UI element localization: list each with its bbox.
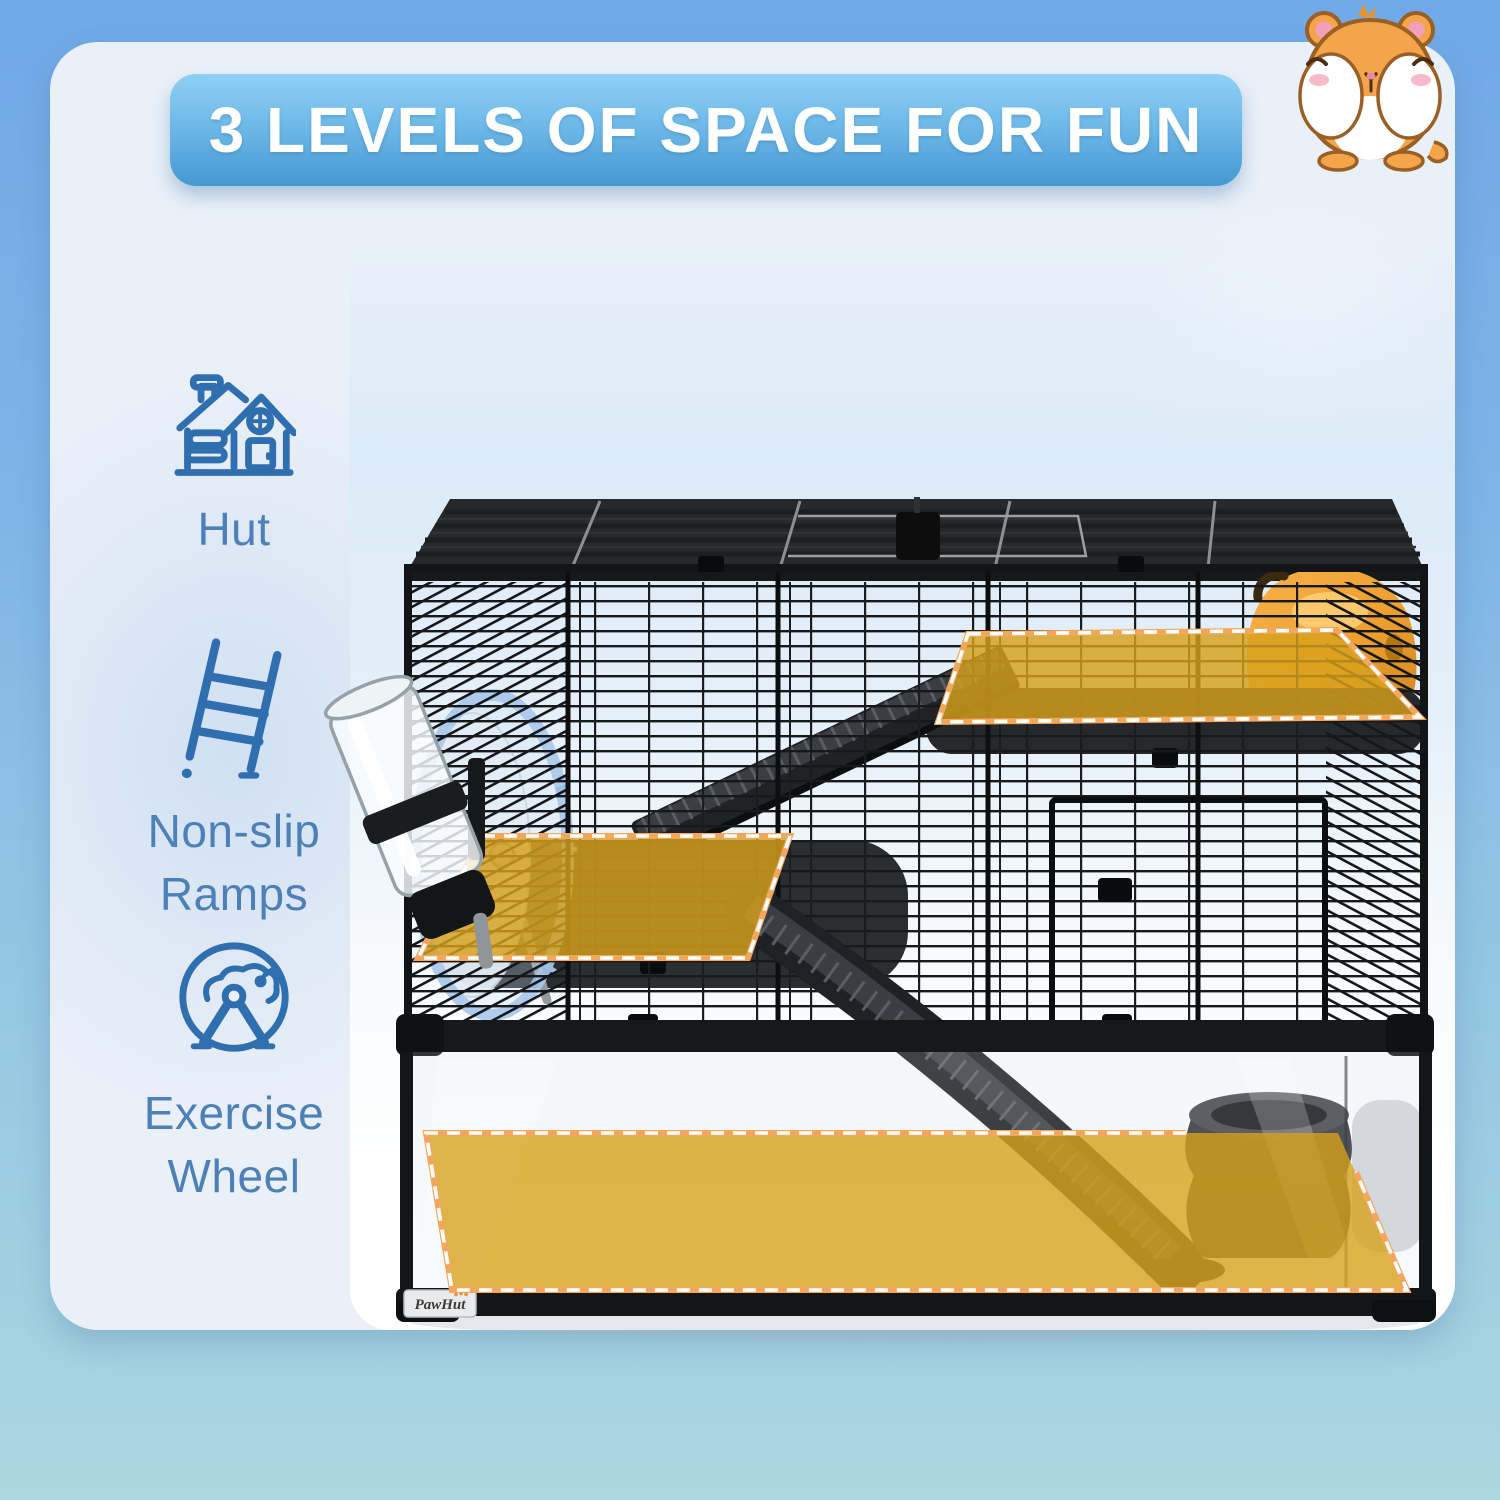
feature-wheel: Exercise Wheel bbox=[88, 938, 380, 1209]
feature-label: Exercise Wheel bbox=[88, 1082, 380, 1209]
title-banner: 3 LEVELS OF SPACE FOR FUN bbox=[170, 74, 1242, 186]
hut-icon bbox=[172, 372, 296, 482]
product-infographic: 3 LEVELS OF SPACE FOR FUN bbox=[0, 0, 1500, 1500]
feature-label: Non-slip Ramps bbox=[88, 800, 380, 927]
feature-label: Hut bbox=[197, 498, 270, 561]
feature-ramps: Non-slip Ramps bbox=[88, 634, 380, 927]
hamster-illustration bbox=[1278, 0, 1464, 176]
level-1-floor-highlight bbox=[426, 1133, 1407, 1290]
banner-title: 3 LEVELS OF SPACE FOR FUN bbox=[209, 93, 1204, 167]
feature-hut: Hut bbox=[88, 372, 380, 561]
brand-logo: PawHut bbox=[404, 1290, 476, 1317]
svg-text:PawHut: PawHut bbox=[415, 1297, 467, 1313]
roof-handle bbox=[896, 512, 940, 560]
exercise-wheel-icon bbox=[170, 938, 298, 1066]
ramp-icon bbox=[176, 634, 292, 784]
